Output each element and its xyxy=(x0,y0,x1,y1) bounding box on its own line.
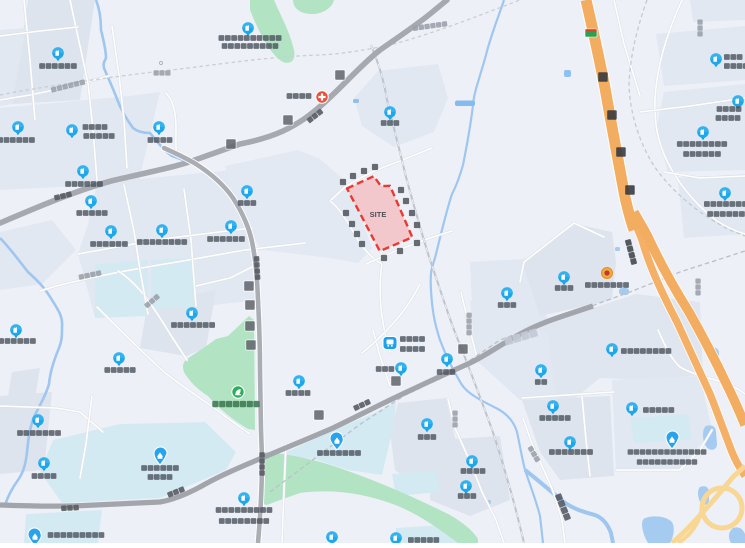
svg-text:SITE: SITE xyxy=(370,210,387,219)
